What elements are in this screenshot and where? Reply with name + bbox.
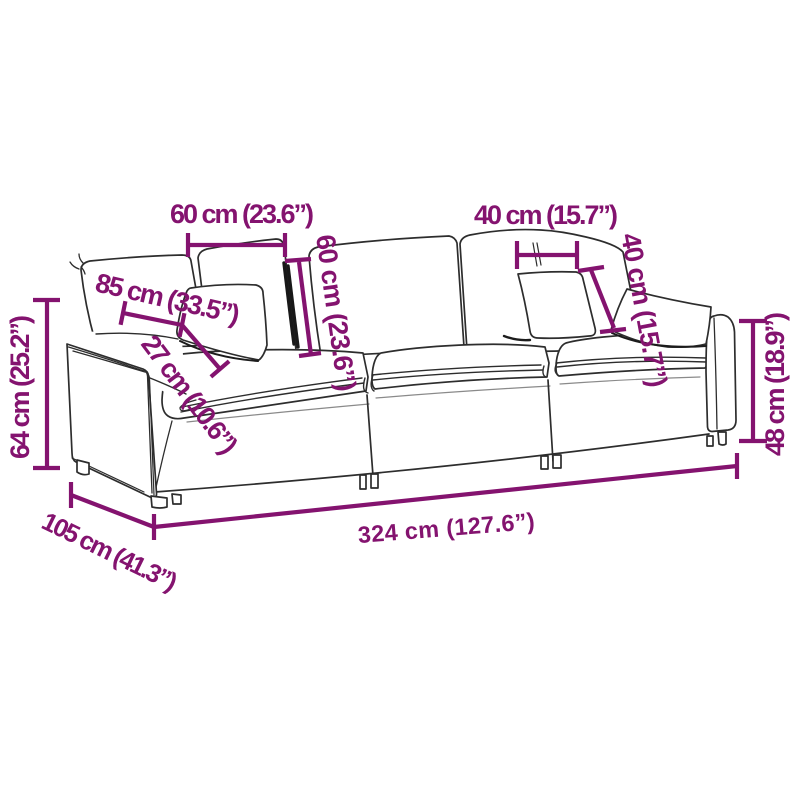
svg-text:48 cm (18.9”): 48 cm (18.9”) [760,313,790,456]
svg-text:60 cm (23.6”): 60 cm (23.6”) [170,199,313,229]
svg-text:40 cm (15.7”): 40 cm (15.7”) [474,200,617,230]
svg-text:64 cm (25.2”): 64 cm (25.2”) [5,316,35,459]
svg-text:105 cm (41.3”): 105 cm (41.3”) [37,507,181,596]
svg-text:324 cm (127.6”): 324 cm (127.6”) [357,508,536,548]
